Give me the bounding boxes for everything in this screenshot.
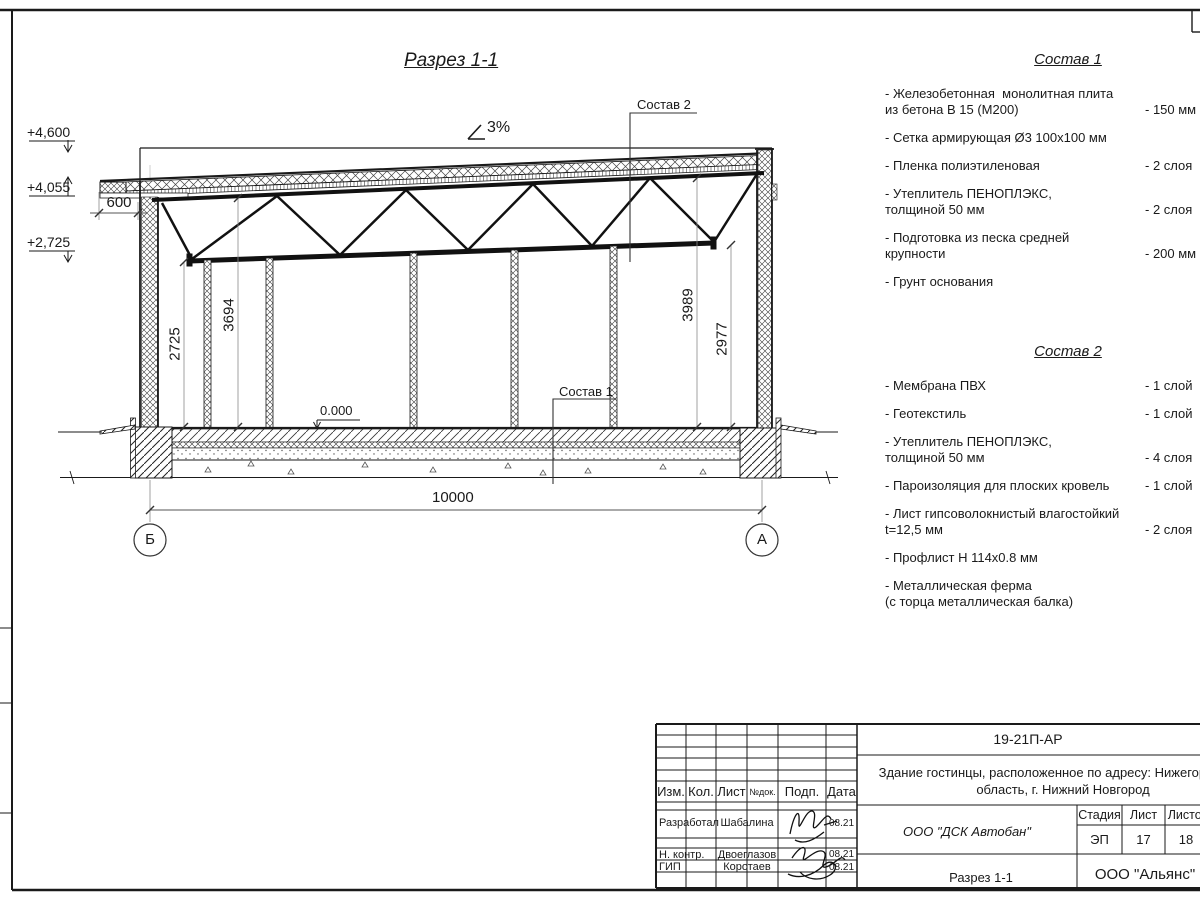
titleblock-object-line1: Здание гостинцы, расположенное по адресу… [857, 765, 1200, 780]
item-name: - Подготовка из песка средней крупности [885, 230, 1145, 262]
elevation-truss-label: +2,725 [27, 234, 70, 250]
titleblock-contractor: ООО "ДСК Автобан" [857, 824, 1077, 839]
axis-bubble-b: Б [134, 531, 166, 548]
list-item: - Пароизоляция для плоских кровель - 1 с… [885, 478, 1197, 494]
list-item: - Геотекстиль - 1 слой [885, 406, 1197, 422]
item-name: - Лист гипсоволокнистый влагостойкий t=1… [885, 506, 1145, 538]
slope-symbol [468, 125, 485, 139]
slope-label: 3% [487, 119, 510, 137]
sostav1-title: Состав 1 [885, 52, 1197, 68]
row3-name: Коротаев [716, 861, 778, 873]
stage-header: Стадия [1077, 808, 1122, 822]
item-value: - 2 слоя [1145, 522, 1192, 538]
item-name: - Сетка армирующая Ø3 100х100 мм [885, 130, 1145, 146]
row1-name: Шабалина [716, 817, 778, 829]
dim-height-2725: 2725 [167, 327, 184, 360]
col-header-ndok: №док. [747, 787, 778, 797]
list-item: - Профлист Н 114х0.8 мм [885, 550, 1197, 566]
list-item: - Сетка армирующая Ø3 100х100 мм [885, 130, 1197, 146]
soil-symbols [205, 461, 706, 475]
item-name: - Металлическая ферма (с торца металличе… [885, 578, 1145, 610]
item-name: - Пароизоляция для плоских кровель [885, 478, 1145, 494]
item-name: - Пленка полиэтиленовая [885, 158, 1145, 174]
item-value: - 2 слоя [1145, 202, 1192, 218]
sostav2-title: Состав 2 [885, 344, 1197, 360]
col-header-kol: Кол. [686, 784, 716, 799]
list-item: - Подготовка из песка средней крупности … [885, 230, 1197, 262]
list-item: - Железобетонная монолитная плита из бет… [885, 86, 1197, 118]
titleblock-object-line2: область, г. Нижний Новгород [857, 782, 1200, 797]
row2-date: 08.21 [826, 849, 857, 860]
sostav2-panel: Состав 2 - Мембрана ПВХ - 1 слой - Геоте… [885, 344, 1197, 622]
sostav1-panel: Состав 1 - Железобетонная монолитная пли… [885, 52, 1197, 302]
list-item: - Пленка полиэтиленовая - 2 слоя [885, 158, 1197, 174]
sheets-value: 18 [1165, 832, 1200, 847]
dim-height-2977: 2977 [714, 322, 731, 355]
row1-role: Разработал [659, 817, 719, 829]
item-name: - Утеплитель ПЕНОПЛЭКС, толщиной 50 мм [885, 434, 1145, 466]
list-item: - Мембрана ПВХ - 1 слой [885, 378, 1197, 394]
dim-overhang: 600 [98, 194, 140, 211]
col-header-izm: Изм. [656, 784, 686, 799]
stage-value: ЭП [1077, 832, 1122, 847]
col-header-list: Лист [716, 784, 747, 799]
dimensions [90, 174, 766, 522]
list-item: - Грунт основания [885, 274, 1197, 290]
sostav1-leader-label: Состав 1 [559, 384, 613, 399]
elevation-eave-label: +4,055 [27, 179, 70, 195]
roof-assembly [100, 148, 772, 198]
row1-date: 08.21 [826, 818, 857, 829]
item-value: - 1 слой [1145, 378, 1193, 394]
list-item: - Металлическая ферма (с торца металличе… [885, 578, 1197, 610]
axis-bubbles [134, 524, 778, 556]
list-item: - Лист гипсоволокнистый влагостойкий t=1… [885, 506, 1197, 538]
row3-date: 08.21 [826, 862, 857, 873]
dim-height-3989: 3989 [680, 288, 697, 321]
item-value: - 150 мм [1145, 102, 1196, 118]
titleblock-view-name: Разрез 1-1 [881, 870, 1081, 885]
item-name: - Железобетонная монолитная плита из бет… [885, 86, 1145, 118]
item-value: - 2 слоя [1145, 158, 1192, 174]
drawing-title: Разрез 1-1 [404, 50, 496, 72]
item-value: - 4 слоя [1145, 450, 1192, 466]
titleblock-doc-code: 19-21П-АР [857, 731, 1199, 747]
item-value: - 1 слой [1145, 478, 1193, 494]
elevation-top-label: +4,600 [27, 124, 70, 140]
item-value: - 200 мм [1145, 246, 1196, 262]
interior-columns [204, 246, 617, 428]
floor-slab [60, 428, 838, 484]
dim-height-3694: 3694 [221, 298, 238, 331]
left-wall [140, 181, 158, 429]
col-header-podp: Подп. [778, 784, 826, 799]
sheet-value: 17 [1122, 832, 1165, 847]
item-name: - Грунт основания [885, 274, 1145, 290]
sheet-header: Лист [1122, 808, 1165, 822]
item-value: - 1 слой [1145, 406, 1193, 422]
item-name: - Мембрана ПВХ [885, 378, 1145, 394]
row2-name: Двоеглазов [716, 849, 778, 861]
row2-role: Н. контр. [659, 849, 704, 861]
item-name: - Утеплитель ПЕНОПЛЭКС, толщиной 50 мм [885, 186, 1145, 218]
zero-level-label: 0.000 [320, 403, 353, 418]
axis-bubble-a: А [746, 531, 778, 548]
row3-role: ГИП [659, 861, 681, 873]
titleblock-company: ООО "Альянс" [1077, 866, 1200, 883]
sheets-header: Листов [1165, 808, 1200, 822]
item-name: - Геотекстиль [885, 406, 1145, 422]
right-wall [755, 148, 777, 429]
list-item: - Утеплитель ПЕНОПЛЭКС, толщиной 50 мм -… [885, 434, 1197, 466]
sostav2-leader-label: Состав 2 [637, 97, 691, 112]
col-header-data: Дата [826, 784, 857, 799]
item-name: - Профлист Н 114х0.8 мм [885, 550, 1145, 566]
list-item: - Утеплитель ПЕНОПЛЭКС, толщиной 50 мм -… [885, 186, 1197, 218]
drawing-sheet: Разрез 1-1 3% Состав 2 Состав 1 0.000 +4… [0, 0, 1200, 900]
dim-span-10000: 10000 [432, 489, 474, 506]
